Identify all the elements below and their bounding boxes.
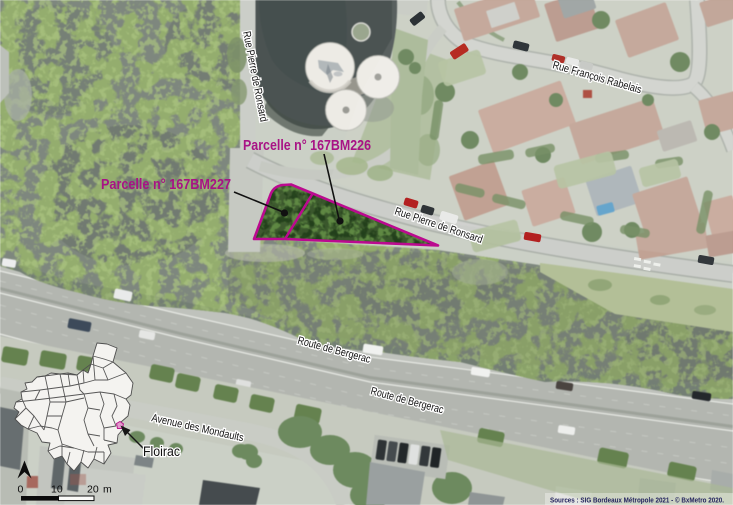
svg-text:m: m — [103, 484, 112, 496]
svg-text:Parcelle n° 167BM227: Parcelle n° 167BM227 — [101, 177, 231, 193]
svg-text:10: 10 — [51, 484, 63, 496]
svg-text:Parcelle n° 167BM226: Parcelle n° 167BM226 — [243, 138, 371, 154]
svg-text:0: 0 — [18, 484, 24, 496]
svg-text:Floirac: Floirac — [143, 444, 180, 459]
svg-text:Sources : SIG Bordeaux Métropo: Sources : SIG Bordeaux Métropole 2021 - … — [550, 496, 724, 505]
svg-text:20: 20 — [87, 484, 99, 496]
